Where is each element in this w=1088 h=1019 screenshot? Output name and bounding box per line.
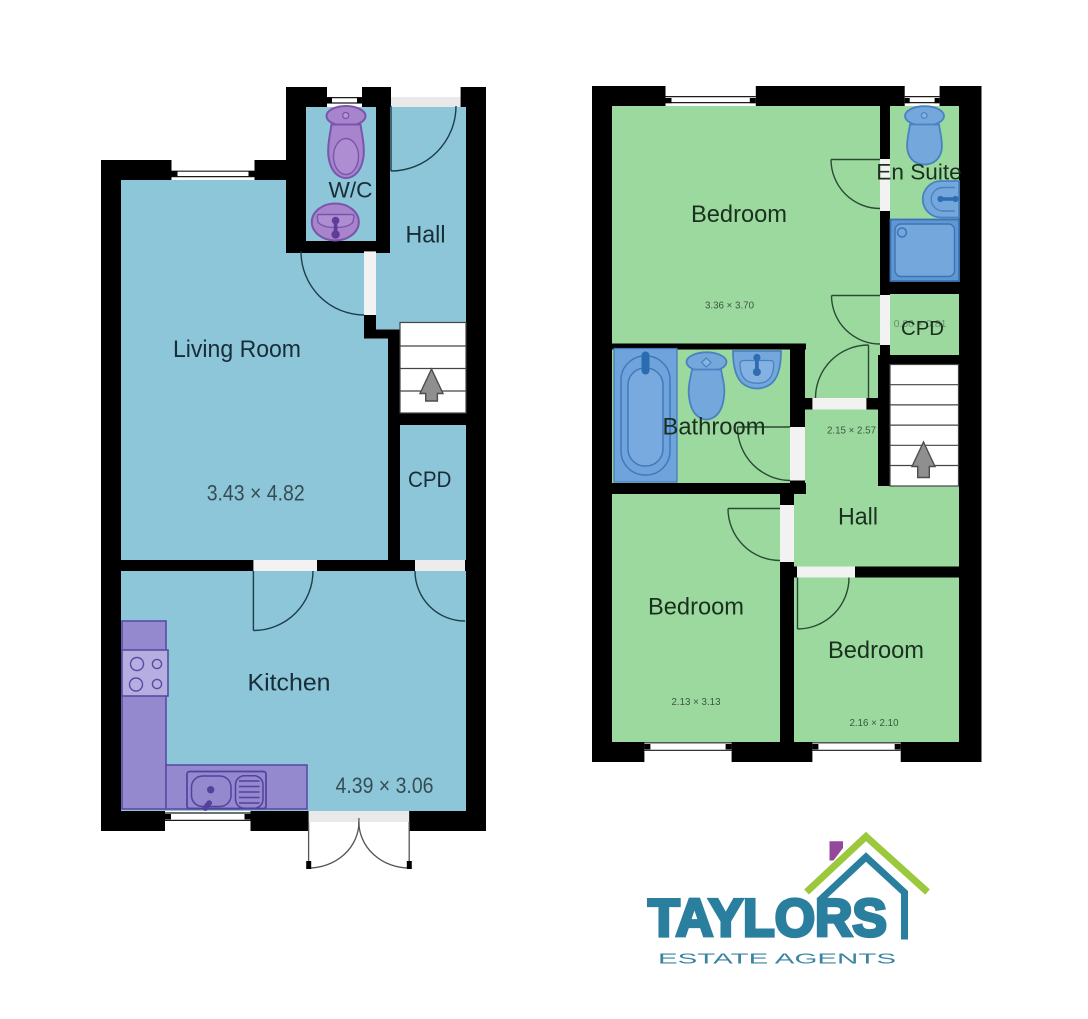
svg-text:En Suite: En Suite	[876, 160, 962, 185]
svg-text:CPD: CPD	[408, 467, 452, 492]
svg-text:2.15 × 2.57: 2.15 × 2.57	[827, 425, 876, 437]
svg-text:3.43 × 4.82: 3.43 × 4.82	[207, 481, 305, 506]
svg-text:TAYLORS: TAYLORS	[648, 889, 887, 948]
svg-text:W/C: W/C	[329, 178, 373, 203]
svg-text:2.13 × 3.13: 2.13 × 3.13	[672, 696, 721, 708]
svg-text:CPD: CPD	[901, 318, 944, 340]
svg-text:2.16 × 2.10: 2.16 × 2.10	[850, 717, 899, 729]
svg-text:Bedroom: Bedroom	[648, 594, 744, 621]
svg-text:Hall: Hall	[838, 504, 878, 531]
svg-text:4.39 × 3.06: 4.39 × 3.06	[336, 773, 434, 798]
svg-text:Bedroom: Bedroom	[691, 201, 787, 228]
svg-text:Kitchen: Kitchen	[248, 670, 331, 697]
svg-text:Living Room: Living Room	[173, 336, 301, 363]
svg-text:3.36 × 3.70: 3.36 × 3.70	[705, 300, 754, 312]
svg-text:Bathroom: Bathroom	[663, 414, 766, 441]
svg-text:ESTATE AGENTS: ESTATE AGENTS	[658, 952, 896, 968]
svg-text:Hall: Hall	[406, 222, 446, 249]
svg-text:Bedroom: Bedroom	[828, 637, 924, 664]
